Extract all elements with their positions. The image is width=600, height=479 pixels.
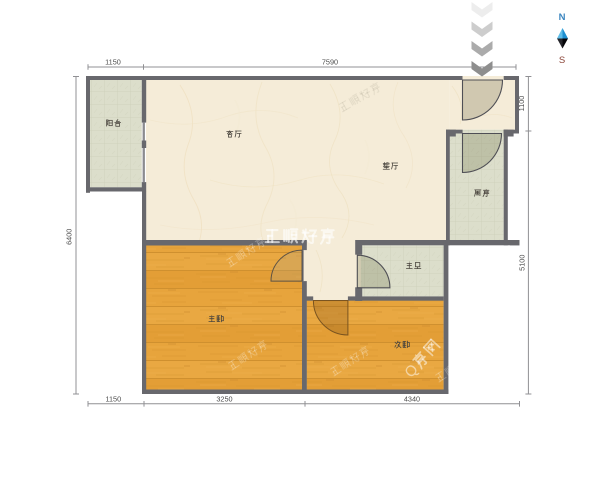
svg-text:1100: 1100 — [517, 96, 526, 112]
svg-text:1150: 1150 — [105, 58, 121, 67]
svg-text:4340: 4340 — [404, 394, 420, 403]
svg-text:7590: 7590 — [322, 58, 338, 67]
svg-text:S: S — [559, 55, 565, 66]
svg-text:1150: 1150 — [105, 394, 121, 403]
svg-text:N: N — [559, 12, 566, 23]
svg-text:6400: 6400 — [65, 229, 74, 245]
svg-text:3250: 3250 — [216, 394, 232, 403]
svg-text:5100: 5100 — [518, 255, 527, 271]
